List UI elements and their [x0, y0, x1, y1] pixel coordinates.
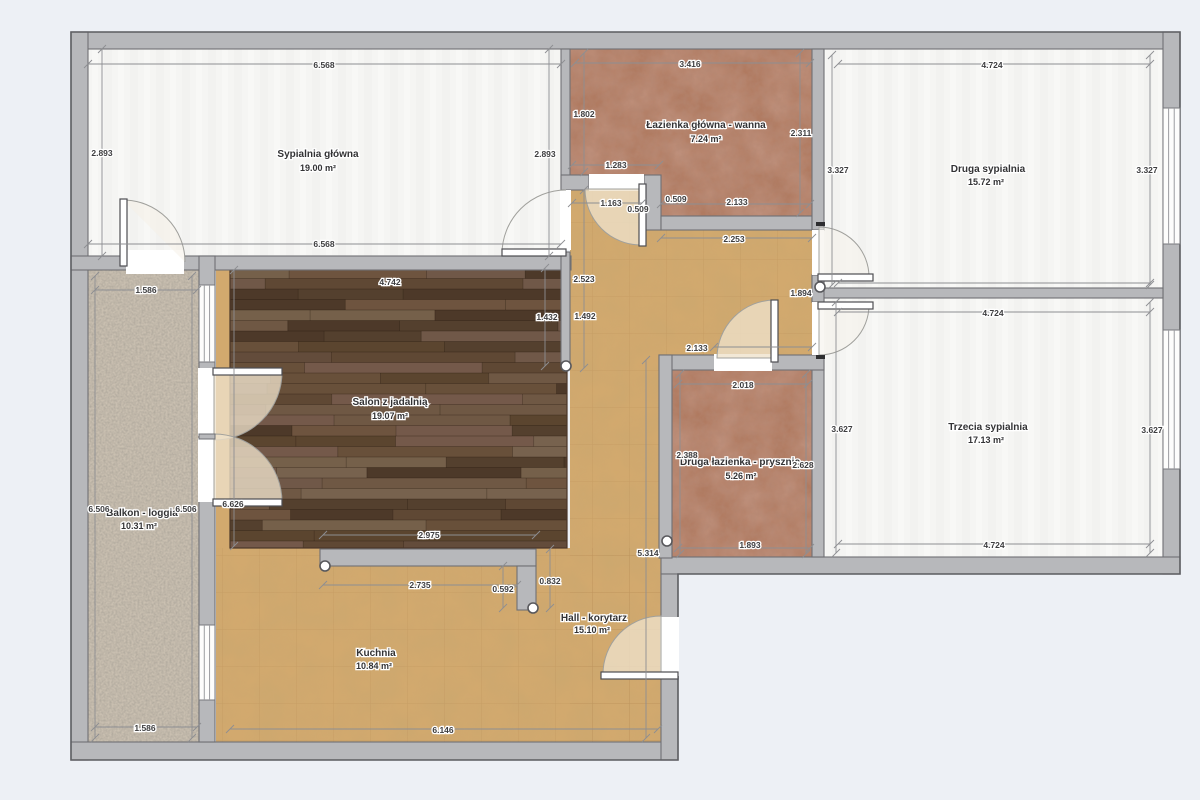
svg-text:2.388: 2.388: [676, 450, 698, 460]
svg-text:2.133: 2.133: [686, 343, 708, 353]
svg-text:1.893: 1.893: [739, 540, 761, 550]
svg-text:1.492: 1.492: [574, 311, 596, 321]
svg-text:2.975: 2.975: [418, 530, 440, 540]
svg-text:Sypialnia główna: Sypialnia główna: [277, 149, 359, 160]
svg-text:1.432: 1.432: [536, 312, 558, 322]
svg-text:Łazienka główna - wanna: Łazienka główna - wanna: [646, 120, 766, 131]
svg-text:1.586: 1.586: [135, 285, 157, 295]
svg-text:0.592: 0.592: [492, 584, 514, 594]
svg-text:2.523: 2.523: [573, 274, 595, 284]
svg-text:2.893: 2.893: [534, 149, 556, 159]
svg-text:19.07 m²: 19.07 m²: [372, 411, 408, 421]
svg-text:2.893: 2.893: [91, 148, 113, 158]
svg-text:0.832: 0.832: [539, 576, 561, 586]
svg-text:4.724: 4.724: [982, 308, 1004, 318]
svg-text:15.10 m²: 15.10 m²: [574, 625, 610, 635]
svg-text:2.311: 2.311: [791, 128, 812, 138]
svg-text:Salon z jadalnią: Salon z jadalnią: [352, 397, 427, 408]
svg-text:2.018: 2.018: [732, 380, 754, 390]
svg-text:7.24 m²: 7.24 m²: [690, 134, 721, 144]
svg-text:0.509: 0.509: [665, 194, 687, 204]
svg-text:3.627: 3.627: [831, 424, 853, 434]
svg-text:15.72 m²: 15.72 m²: [968, 177, 1004, 187]
svg-text:3.416: 3.416: [679, 59, 701, 69]
svg-text:6.506: 6.506: [88, 504, 110, 514]
svg-text:4.742: 4.742: [379, 277, 401, 287]
svg-text:3.327: 3.327: [1136, 165, 1158, 175]
svg-text:6.626: 6.626: [222, 499, 244, 509]
svg-text:2.735: 2.735: [409, 580, 431, 590]
svg-text:1.586: 1.586: [134, 723, 156, 733]
svg-text:1.163: 1.163: [600, 198, 622, 208]
svg-text:5.26 m²: 5.26 m²: [725, 471, 756, 481]
svg-text:10.31 m²: 10.31 m²: [121, 521, 157, 531]
svg-text:19.00 m²: 19.00 m²: [300, 163, 336, 173]
svg-text:1.802: 1.802: [573, 109, 595, 119]
svg-text:Trzecia sypialnia: Trzecia sypialnia: [948, 422, 1028, 433]
svg-text:Kuchnia: Kuchnia: [356, 648, 396, 659]
svg-text:6.146: 6.146: [432, 725, 454, 735]
svg-text:Balkon - loggia: Balkon - loggia: [106, 508, 178, 519]
svg-text:4.724: 4.724: [981, 60, 1003, 70]
svg-text:Druga sypialnia: Druga sypialnia: [951, 164, 1026, 175]
svg-text:2.253: 2.253: [723, 234, 745, 244]
svg-text:3.327: 3.327: [827, 165, 849, 175]
svg-text:Hall - korytarz: Hall - korytarz: [561, 613, 627, 624]
svg-text:3.627: 3.627: [1141, 425, 1163, 435]
svg-text:5.314: 5.314: [637, 548, 659, 558]
svg-text:2.133: 2.133: [726, 197, 748, 207]
svg-text:17.13 m²: 17.13 m²: [968, 435, 1004, 445]
svg-text:1.894: 1.894: [790, 288, 812, 298]
svg-text:6.568: 6.568: [313, 239, 335, 249]
svg-text:6.568: 6.568: [313, 60, 335, 70]
svg-text:4.724: 4.724: [983, 540, 1005, 550]
svg-text:6.506: 6.506: [175, 504, 197, 514]
svg-text:Druga łazienka - prysznic: Druga łazienka - prysznic: [680, 457, 800, 468]
svg-text:0.509: 0.509: [627, 204, 649, 214]
svg-text:10.84 m²: 10.84 m²: [356, 661, 392, 671]
svg-text:1.283: 1.283: [605, 160, 627, 170]
svg-text:2.628: 2.628: [792, 460, 814, 470]
